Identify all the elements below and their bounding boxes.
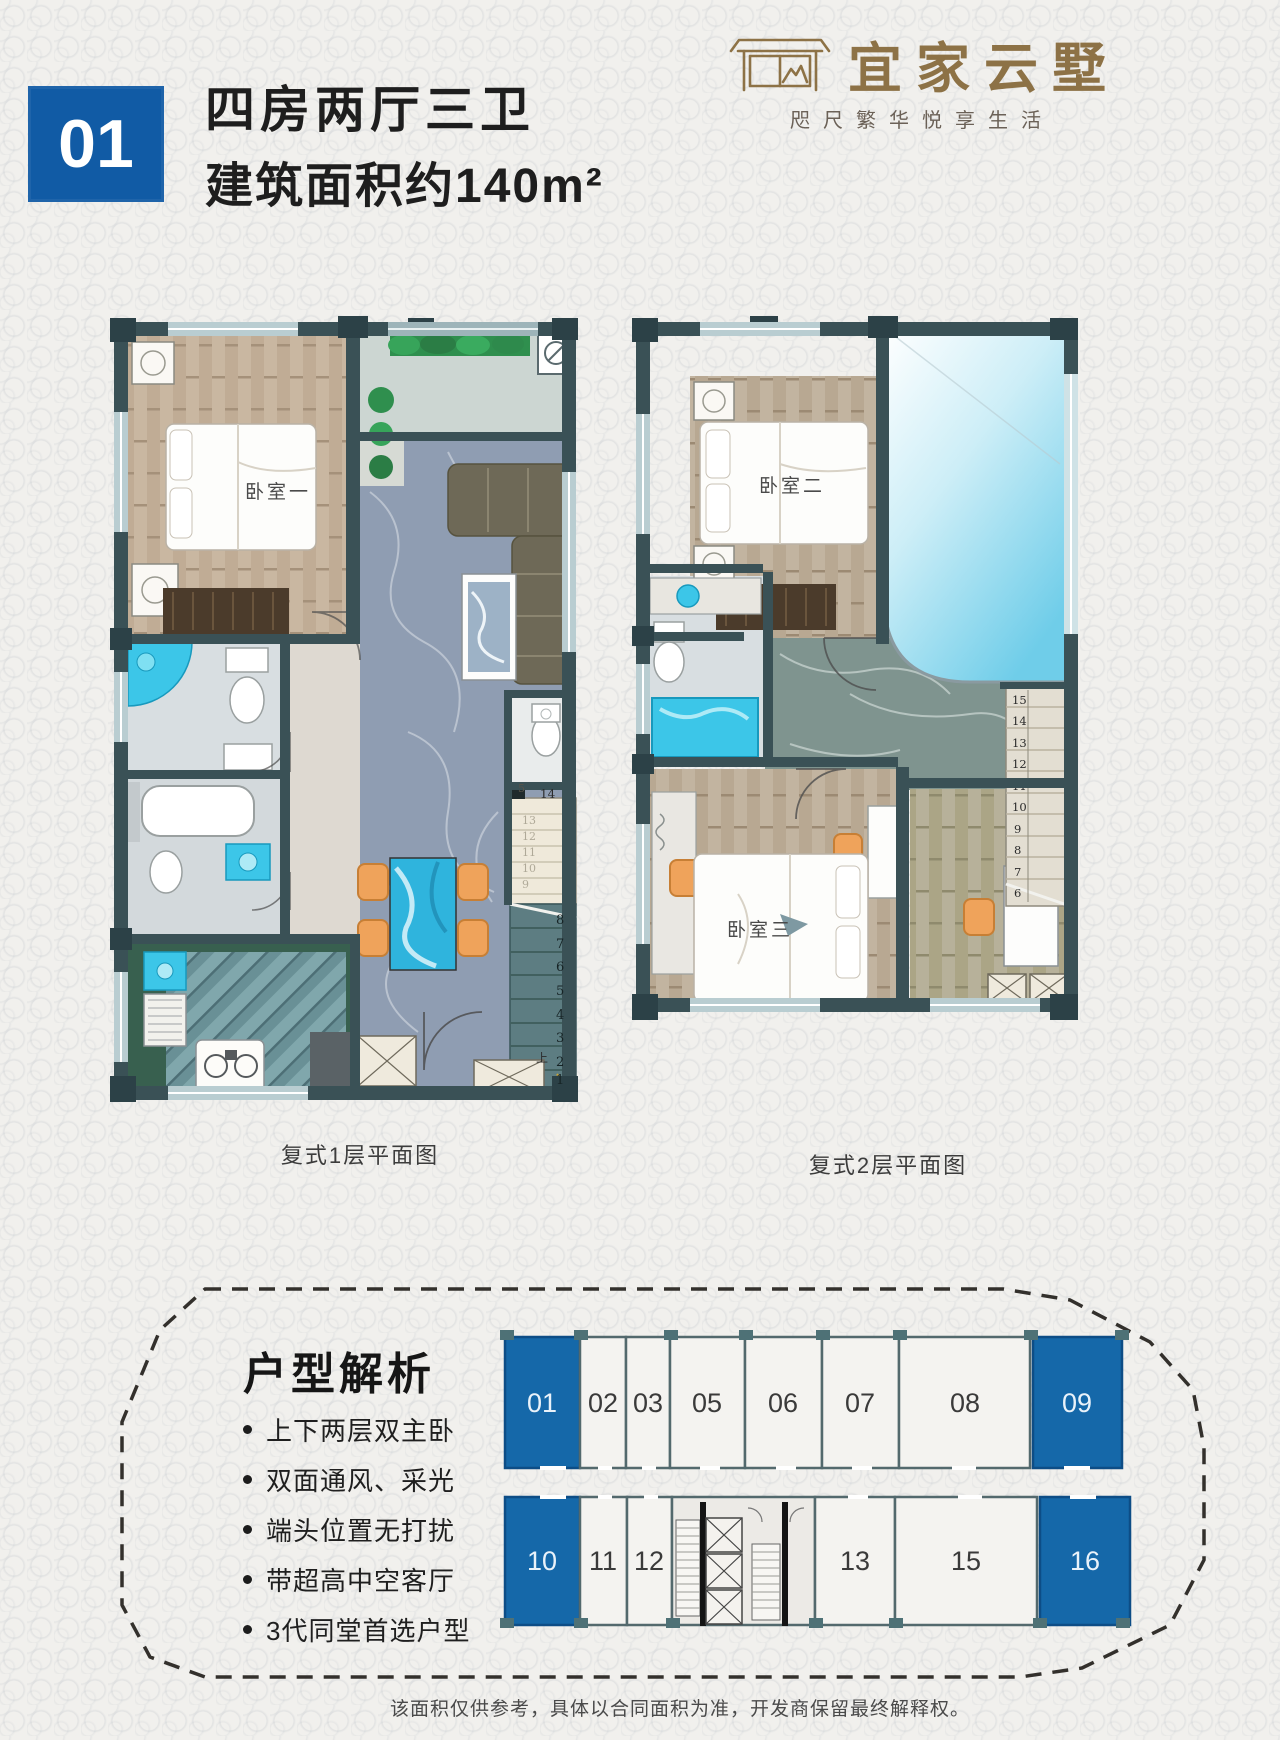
bullet-text: 3代同堂首选户型 bbox=[266, 1611, 470, 1648]
floor-plan-level1: 卧室一 14 5 13 12 11 10 9 8 7 6 5 4 3 2 1 上 bbox=[108, 312, 582, 1112]
bullet-dot bbox=[243, 1625, 252, 1634]
svg-text:5: 5 bbox=[556, 984, 564, 999]
unit-label-07: 07 bbox=[845, 1388, 875, 1418]
svg-text:7: 7 bbox=[556, 937, 564, 952]
tv-cabinet bbox=[462, 574, 516, 680]
core-elevators-stairs bbox=[676, 1502, 804, 1626]
brand-tagline: 咫尺繁华悦享生活 bbox=[790, 104, 1054, 133]
page-title: 四房两厅三卫 bbox=[205, 70, 535, 142]
unit-label-08: 08 bbox=[950, 1388, 980, 1418]
plan2-caption: 复式2层平面图 bbox=[678, 1148, 1098, 1180]
svg-text:6: 6 bbox=[556, 960, 564, 975]
bedroom3-label: 卧室三 bbox=[727, 919, 793, 941]
bedroom2-label: 卧室二 bbox=[759, 475, 825, 497]
unit-label-05: 05 bbox=[692, 1388, 722, 1418]
svg-text:7: 7 bbox=[1014, 865, 1021, 879]
unit-label-03: 03 bbox=[633, 1388, 663, 1418]
unit-label-12: 12 bbox=[634, 1546, 664, 1576]
unit-label-16: 16 bbox=[1070, 1546, 1100, 1576]
svg-text:12: 12 bbox=[522, 830, 536, 843]
stair-up-label: 上 bbox=[536, 1051, 548, 1065]
plan1-caption: 复式1层平面图 bbox=[150, 1138, 570, 1170]
bullet-dot bbox=[243, 1525, 252, 1534]
svg-text:9: 9 bbox=[1014, 822, 1021, 836]
svg-text:1: 1 bbox=[556, 1073, 564, 1088]
building-key-plan: 01 02 03 05 06 07 08 09 10 11 12 13 15 1… bbox=[452, 1322, 1142, 1634]
page-subtitle-area: 建筑面积约140m² bbox=[205, 146, 604, 216]
bath3-fixtures bbox=[532, 704, 560, 756]
svg-text:12: 12 bbox=[1012, 757, 1027, 771]
bullet-text: 端头位置无打扰 bbox=[266, 1511, 455, 1548]
svg-text:15: 15 bbox=[1012, 693, 1027, 707]
unit-label-09: 09 bbox=[1062, 1388, 1092, 1418]
bullet-text: 上下两层双主卧 bbox=[266, 1411, 455, 1448]
corridor-door-gaps bbox=[540, 1468, 1096, 1497]
unit-label-01: 01 bbox=[527, 1388, 557, 1418]
double-height-void bbox=[884, 328, 1066, 682]
disclaimer-text: 该面积仅供参考，具体以合同面积为准，开发商保留最终解释权。 bbox=[280, 1694, 1080, 1721]
unit-label-10: 10 bbox=[527, 1546, 557, 1576]
svg-text:4: 4 bbox=[556, 1008, 564, 1023]
brand-logo-text: 宜家云墅 bbox=[848, 24, 1120, 103]
bullet-dot bbox=[243, 1575, 252, 1584]
stair-mid-number: 5 bbox=[518, 782, 525, 795]
svg-text:14: 14 bbox=[1012, 714, 1027, 728]
svg-text:13: 13 bbox=[1012, 736, 1027, 750]
bullet-dot bbox=[243, 1475, 252, 1484]
bullet-text: 双面通风、采光 bbox=[266, 1461, 455, 1498]
svg-text:3: 3 bbox=[556, 1031, 564, 1046]
svg-text:2: 2 bbox=[556, 1055, 564, 1070]
planter-strip bbox=[388, 334, 530, 356]
unit-number-badge: 01 bbox=[28, 86, 164, 202]
svg-text:11: 11 bbox=[522, 846, 536, 859]
svg-text:8: 8 bbox=[556, 913, 564, 928]
svg-text:10: 10 bbox=[1012, 800, 1027, 814]
flyer-page: 01 四房两厅三卫 建筑面积约140m² 宜家云墅 咫尺繁华悦享生活 bbox=[0, 0, 1280, 1740]
floor-plan-level2: 15 14 13 12 11 10 9 8 7 6 bbox=[630, 314, 1082, 1024]
pavilion-gate-icon bbox=[728, 34, 832, 96]
svg-text:9: 9 bbox=[522, 878, 529, 891]
hall-floor bbox=[290, 642, 360, 942]
unit-label-06: 06 bbox=[768, 1388, 798, 1418]
analysis-heading: 户型解析 bbox=[243, 1338, 435, 1402]
stair-top-number: 14 bbox=[540, 787, 556, 801]
bullet-text: 带超高中空客厅 bbox=[266, 1561, 455, 1598]
unit-label-02: 02 bbox=[588, 1388, 618, 1418]
svg-text:13: 13 bbox=[522, 814, 536, 827]
svg-text:8: 8 bbox=[1014, 843, 1021, 857]
bullet-dot bbox=[243, 1425, 252, 1434]
unit-label-15: 15 bbox=[951, 1546, 981, 1576]
bedroom1-label: 卧室一 bbox=[245, 481, 311, 503]
unit-label-11: 11 bbox=[589, 1546, 617, 1576]
svg-text:10: 10 bbox=[522, 862, 536, 875]
svg-text:6: 6 bbox=[1014, 886, 1021, 900]
unit-label-13: 13 bbox=[840, 1546, 870, 1576]
